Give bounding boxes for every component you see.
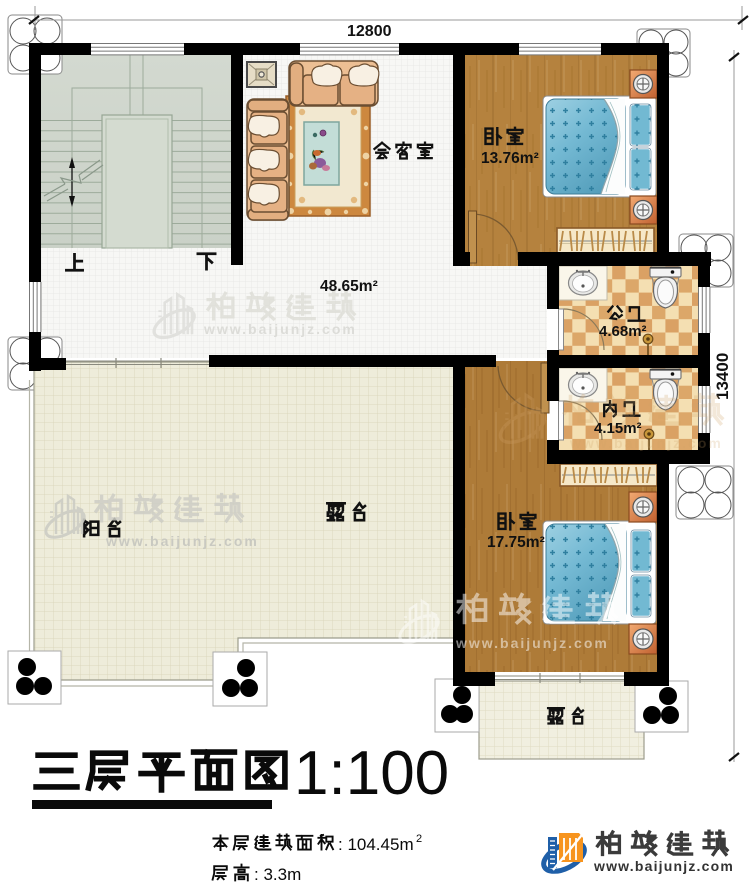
svg-text:13400: 13400 <box>713 353 732 400</box>
svg-text:www.baijunjz.com: www.baijunjz.com <box>593 858 734 874</box>
svg-text:1:100: 1:100 <box>294 739 449 808</box>
svg-text:www.baijunjz.com: www.baijunjz.com <box>105 533 259 549</box>
svg-text:17.75m²: 17.75m² <box>487 534 545 551</box>
svg-text:www.baijunjz.com: www.baijunjz.com <box>203 321 357 337</box>
svg-text:2: 2 <box>416 833 422 845</box>
svg-text:48.65m²: 48.65m² <box>320 278 378 295</box>
svg-text:4.68m²: 4.68m² <box>599 323 647 340</box>
svg-text:: 3.3m: : 3.3m <box>254 865 301 884</box>
svg-text:www.baijunjz.com: www.baijunjz.com <box>455 635 609 651</box>
svg-text:: 104.45m: : 104.45m <box>338 835 414 854</box>
svg-text:12800: 12800 <box>347 23 392 40</box>
svg-text:www.baijunjz.com: www.baijunjz.com <box>569 435 723 451</box>
svg-text:13.76m²: 13.76m² <box>481 150 539 167</box>
